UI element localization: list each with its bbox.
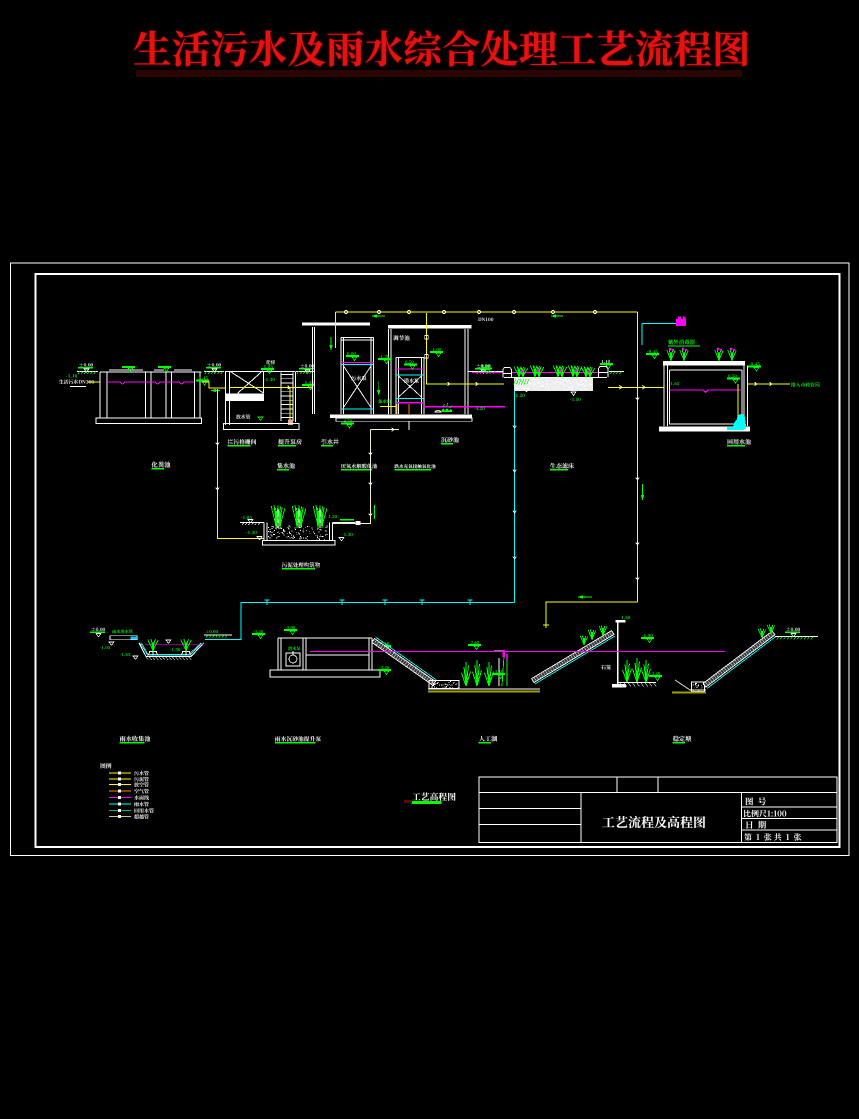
svg-text:1.50: 1.50 [621, 615, 631, 621]
svg-text:-1.65: -1.65 [669, 381, 680, 387]
svg-text:-1.05: -1.05 [241, 515, 252, 521]
svg-text:污水泵: 污水泵 [351, 375, 367, 382]
svg-text:调节池: 调节池 [393, 334, 410, 342]
svg-text:-1.50: -1.50 [570, 397, 581, 403]
svg-text:生活污水及雨水综合处理工艺流程图: 生活污水及雨水综合处理工艺流程图 [133, 20, 751, 75]
svg-text:-1.20: -1.20 [514, 393, 525, 399]
svg-text:-4.20: -4.20 [474, 406, 485, 412]
svg-text:第 1 张 共 1 张: 第 1 张 共 1 张 [744, 832, 801, 843]
svg-text:比例尺1:100: 比例尺1:100 [743, 809, 787, 820]
svg-text:1.20: 1.20 [328, 514, 338, 520]
svg-text:±0.00: ±0.00 [205, 629, 219, 635]
svg-text:潜水泵: 潜水泵 [288, 646, 301, 652]
svg-text:人工湖: 人工湖 [479, 734, 498, 743]
svg-text:集水池: 集水池 [277, 461, 295, 470]
svg-text:生态滤床: 生态滤床 [550, 461, 574, 470]
svg-text:紫外消毒器: 紫外消毒器 [668, 338, 696, 346]
svg-text:稳定塘: 稳定塘 [673, 734, 692, 743]
svg-text:-1.85: -1.85 [120, 652, 131, 658]
svg-text:排入市政管网: 排入市政管网 [791, 382, 820, 389]
svg-text:图 号: 图 号 [745, 796, 767, 808]
svg-text:-1.30: -1.30 [342, 532, 353, 538]
svg-text:石笼: 石笼 [601, 664, 611, 671]
svg-text:工艺流程及高程图: 工艺流程及高程图 [602, 812, 706, 831]
svg-text:引水井: 引水井 [321, 437, 339, 446]
svg-text:雨水收集池: 雨水收集池 [120, 734, 152, 743]
svg-text:日 期: 日 期 [745, 819, 767, 831]
svg-text:雨水进水管: 雨水进水管 [112, 629, 134, 635]
svg-text:图例: 图例 [100, 761, 112, 770]
svg-text:集水坑: 集水坑 [378, 399, 392, 405]
svg-text:雨水沉砂池提升泵: 雨水沉砂池提升泵 [275, 734, 322, 743]
svg-text:放水管: 放水管 [236, 414, 251, 421]
svg-text:超越管: 超越管 [134, 814, 149, 821]
svg-text:污泥处理构筑物: 污泥处理构筑物 [282, 561, 321, 569]
svg-text:化粪池: 化粪池 [151, 460, 171, 469]
svg-text:-1.30: -1.30 [264, 377, 275, 383]
svg-text:沉砂池: 沉砂池 [441, 435, 459, 444]
svg-text:DN100: DN100 [478, 317, 494, 323]
svg-text:-1.05: -1.05 [100, 645, 111, 651]
svg-text:提升泵房: 提升泵房 [278, 437, 302, 446]
svg-text:-1.50: -1.50 [170, 647, 181, 653]
svg-text:潜水泵: 潜水泵 [404, 378, 419, 385]
svg-text:回用水池: 回用水池 [727, 437, 751, 446]
svg-text:-1.30: -1.30 [246, 530, 257, 536]
svg-text:拦污格栅间: 拦污格栅间 [228, 437, 257, 446]
